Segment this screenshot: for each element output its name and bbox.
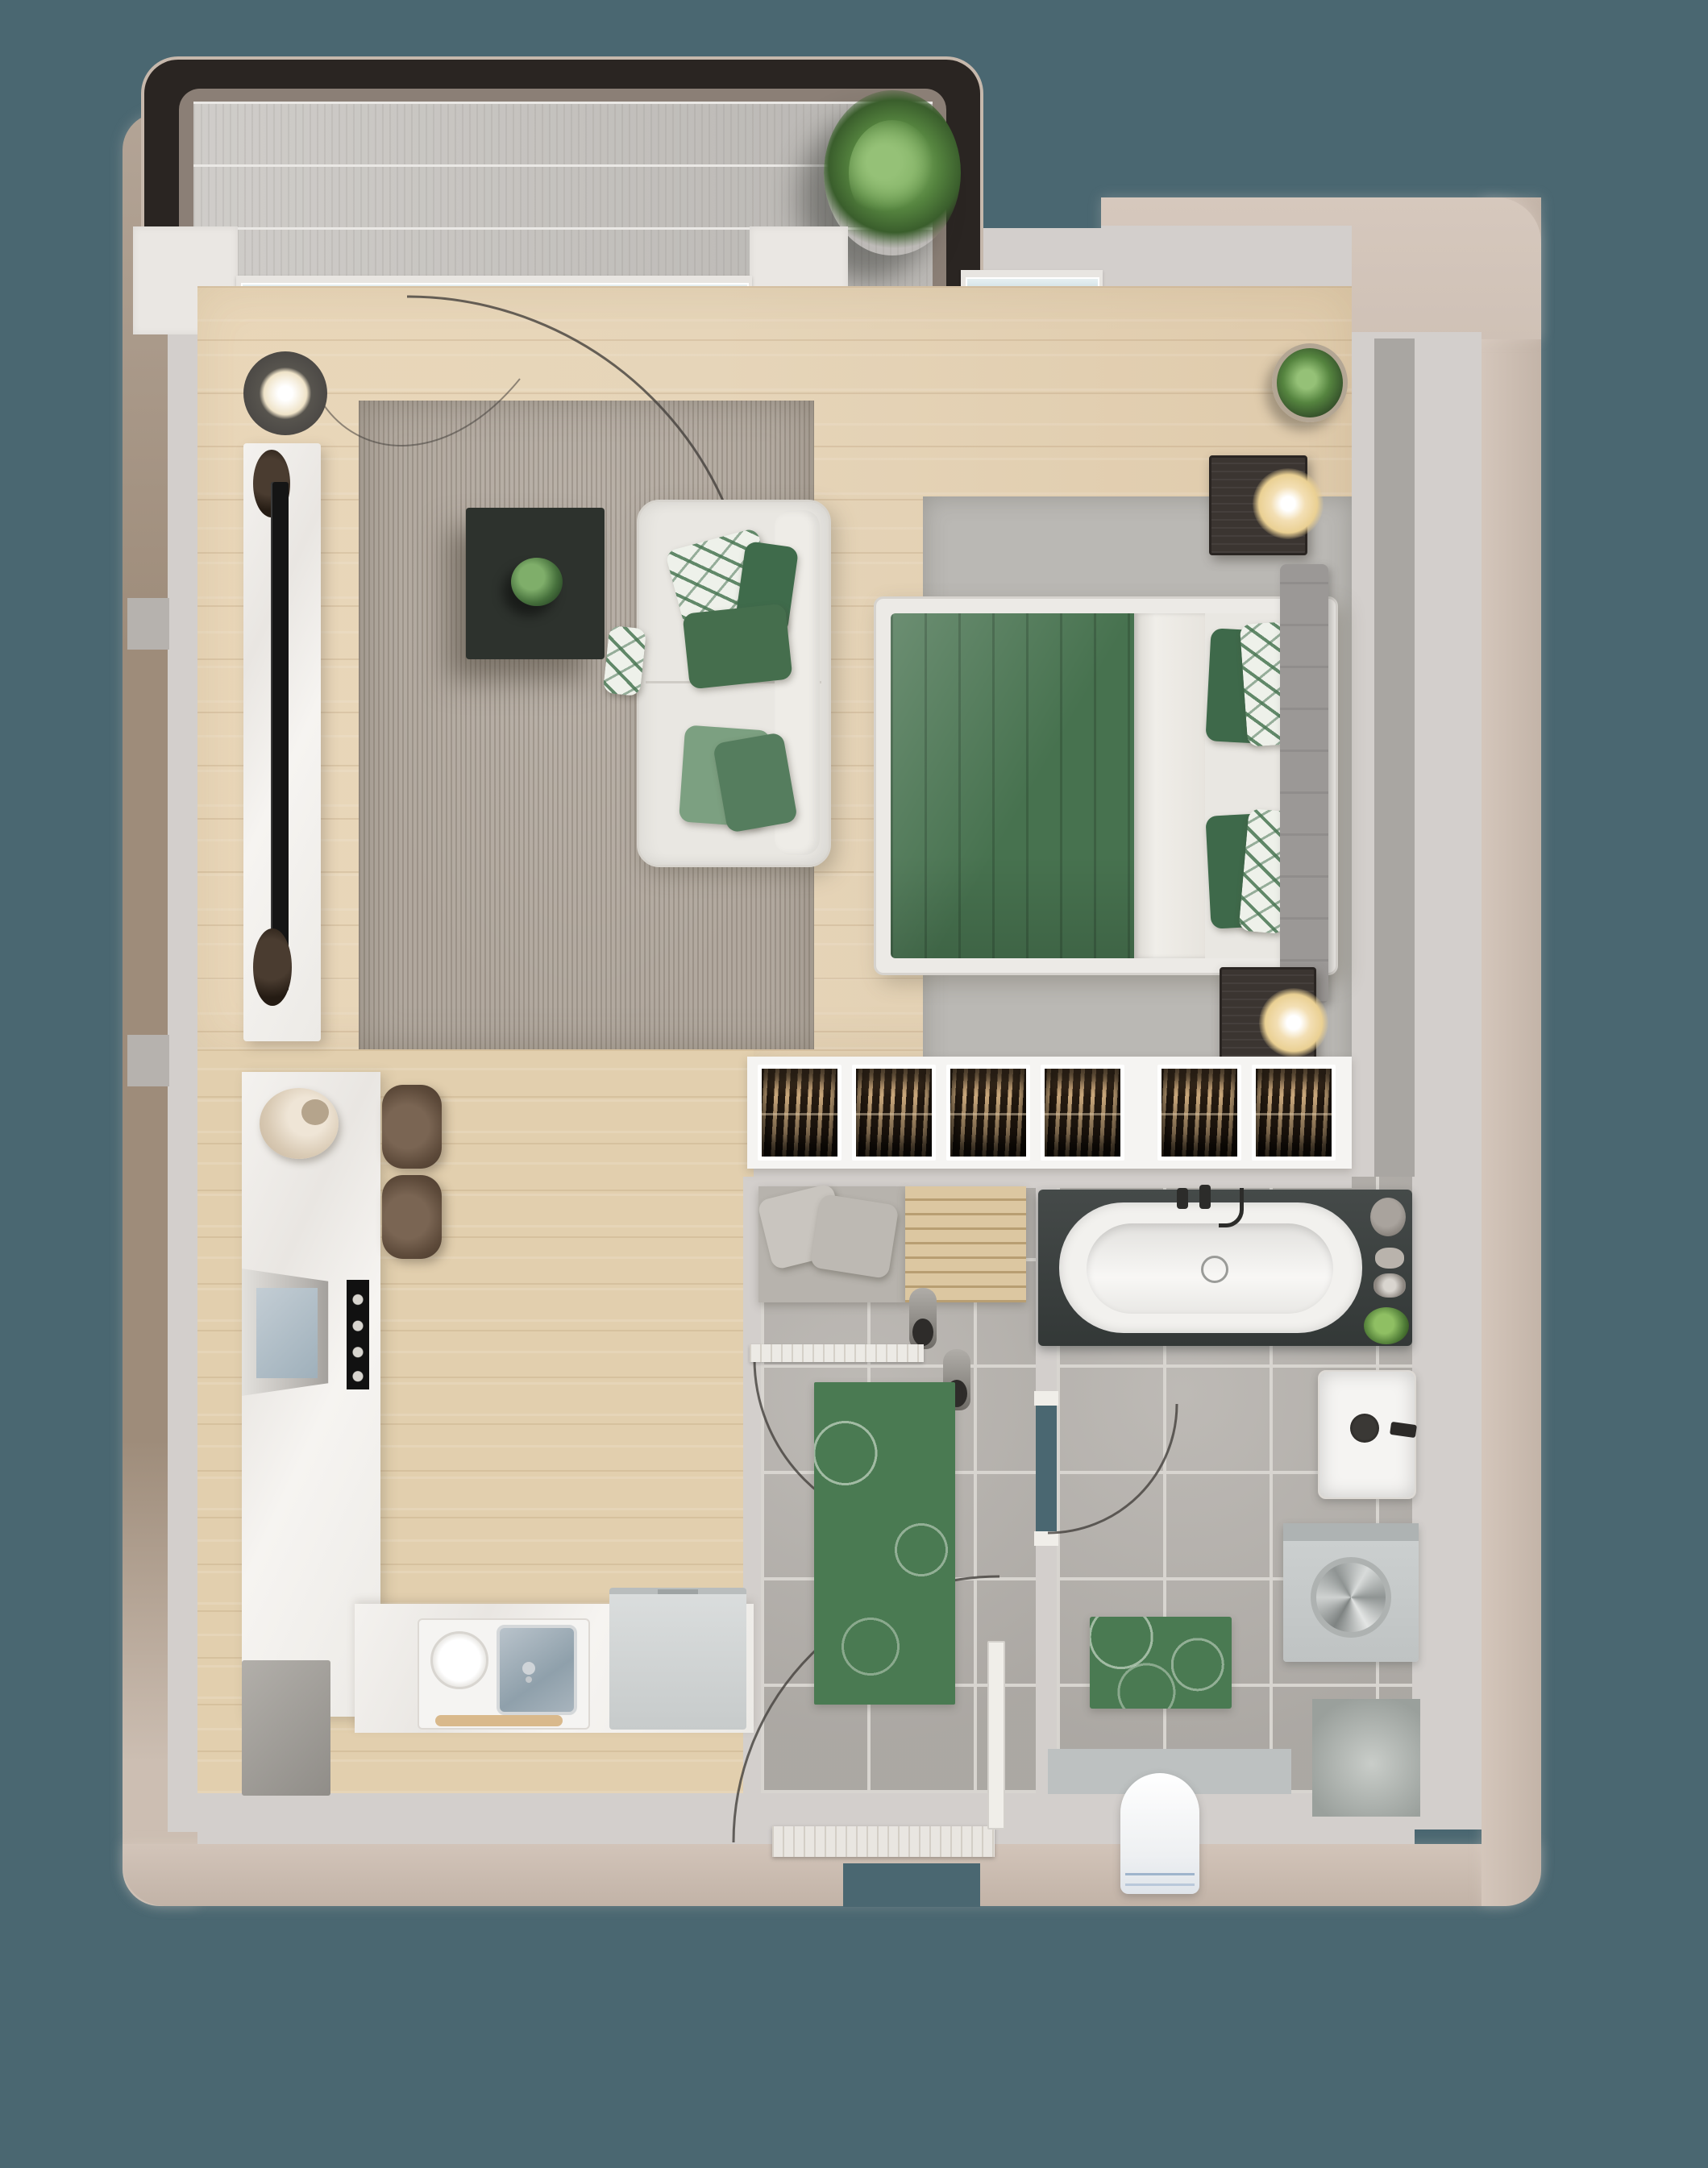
wardrobe-basket bbox=[1157, 1065, 1241, 1161]
shower-mat bbox=[1312, 1699, 1420, 1817]
faucet-handle-1 bbox=[1177, 1188, 1188, 1209]
sofa-pillow-green bbox=[682, 604, 792, 690]
bathtub-surround bbox=[1038, 1190, 1412, 1346]
bench-pillow-2 bbox=[809, 1194, 899, 1279]
hallway-rug bbox=[814, 1382, 955, 1705]
hob-controls bbox=[347, 1280, 369, 1389]
wardrobe-baskets bbox=[747, 1057, 1352, 1169]
washer-top-lip bbox=[1283, 1523, 1419, 1541]
dishwasher bbox=[609, 1588, 746, 1730]
hall-door-threshold bbox=[750, 1344, 924, 1362]
console-bowl-bottom bbox=[253, 928, 292, 1006]
wardrobe-basket bbox=[1041, 1065, 1124, 1161]
toilet-mat bbox=[1090, 1617, 1232, 1709]
kitchen-sink-round bbox=[430, 1631, 488, 1689]
entry-door-leaf bbox=[987, 1641, 1005, 1830]
tv-screen bbox=[271, 482, 289, 991]
tub-faucet bbox=[1172, 1183, 1245, 1228]
hood-screen bbox=[256, 1288, 318, 1378]
plate-bowl bbox=[301, 1099, 329, 1125]
bedroom-plant bbox=[1272, 343, 1348, 422]
dishwasher-handle bbox=[658, 1589, 698, 1594]
wardrobe-unit bbox=[747, 1057, 1352, 1169]
bathroom-door-arc bbox=[1048, 1404, 1177, 1533]
wardrobe-basket bbox=[758, 1065, 842, 1161]
toilet bbox=[1120, 1773, 1199, 1894]
hall-bench-cushion bbox=[758, 1186, 905, 1302]
hall-bench-slats bbox=[905, 1186, 1026, 1302]
bath-shelf-item-3 bbox=[1373, 1273, 1406, 1298]
lamp-cord bbox=[322, 379, 520, 446]
coffee-table bbox=[466, 508, 605, 659]
floor-lamp bbox=[243, 351, 327, 435]
kitchen-plate bbox=[260, 1088, 339, 1159]
tv-console bbox=[243, 443, 321, 1041]
sink-faucet bbox=[1390, 1422, 1417, 1438]
tub-drain bbox=[1201, 1256, 1228, 1283]
bed bbox=[874, 596, 1338, 975]
wardrobe-basket bbox=[946, 1065, 1030, 1161]
wardrobe-basket bbox=[1252, 1065, 1336, 1161]
bed-sheet bbox=[1134, 613, 1205, 958]
kitchen-faucet bbox=[522, 1662, 535, 1675]
kitchen-mat bbox=[242, 1660, 330, 1796]
bath-shelf-plant bbox=[1364, 1307, 1409, 1344]
dining-chair-1 bbox=[382, 1085, 442, 1169]
bathroom-sink bbox=[1318, 1370, 1416, 1499]
sink-drain bbox=[1350, 1414, 1379, 1443]
faucet-handle-2 bbox=[1199, 1185, 1211, 1209]
entry-threshold bbox=[772, 1826, 995, 1857]
washer-drum bbox=[1311, 1557, 1391, 1638]
nightstand-lamp-bottom bbox=[1259, 988, 1328, 1057]
sofa bbox=[637, 500, 831, 867]
kitchen-sink-steel bbox=[497, 1625, 577, 1715]
cutting-board bbox=[435, 1715, 563, 1726]
bath-shelf-item-1 bbox=[1370, 1198, 1406, 1236]
shoe-left bbox=[909, 1288, 937, 1349]
sofa-side-pillow bbox=[603, 625, 647, 696]
wardrobe-basket bbox=[852, 1065, 936, 1161]
dining-chair-2 bbox=[382, 1175, 442, 1259]
washing-machine bbox=[1283, 1523, 1419, 1662]
floorplan-stage bbox=[0, 0, 1708, 2168]
page-background: { "meta": { "type": "floor-plan-render",… bbox=[0, 0, 1708, 2168]
faucet-spout bbox=[1219, 1188, 1244, 1227]
bath-shelf-item-2 bbox=[1375, 1248, 1404, 1269]
bed-headboard bbox=[1280, 564, 1328, 1003]
kitchen-sink-module bbox=[418, 1618, 590, 1730]
nightstand-lamp-top bbox=[1253, 468, 1324, 539]
bed-duvet bbox=[891, 613, 1134, 958]
table-plant bbox=[511, 558, 563, 606]
